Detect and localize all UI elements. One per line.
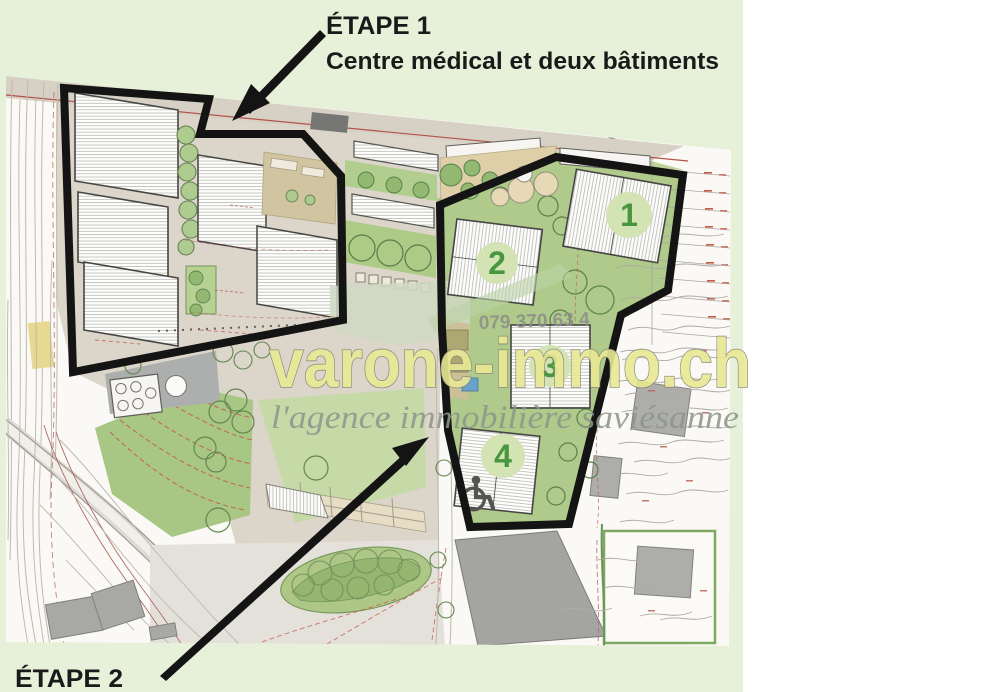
svg-text:ÉTAPE 2: ÉTAPE 2 [15,664,123,692]
svg-text:Centre médical et deux bâtimen: Centre médical et deux bâtiments [326,48,719,75]
svg-text:l'agence immobilière saviésann: l'agence immobilière saviésanne [271,400,739,436]
svg-text:ÉTAPE 1: ÉTAPE 1 [326,11,431,40]
svg-text:varone-immo.ch: varone-immo.ch [269,324,751,402]
